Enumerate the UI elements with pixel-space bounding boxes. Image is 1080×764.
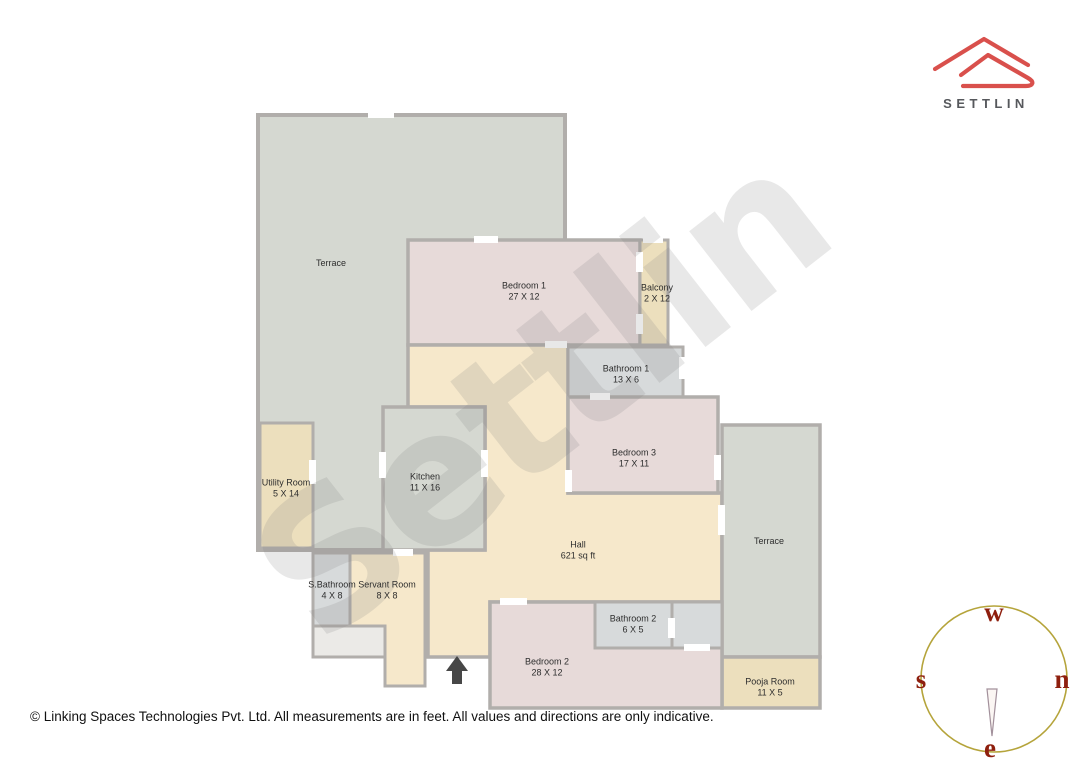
door-gap: [393, 549, 413, 556]
room-label-pooja: Pooja Room11 X 5: [745, 677, 795, 698]
room-label-bedroom-3: Bedroom 317 X 11: [612, 448, 656, 469]
room-label-s-bathroom: S.Bathroom4 X 8: [308, 580, 356, 601]
door-gap: [718, 505, 725, 535]
entrance-arrow-icon: [446, 656, 468, 684]
door-gap: [636, 314, 643, 334]
door-gap: [545, 341, 567, 348]
door-gap: [668, 618, 675, 638]
window-gap: [368, 111, 394, 118]
compass-circle: [921, 606, 1067, 752]
room-passage: [672, 602, 722, 648]
compass-north-label: n: [1054, 664, 1069, 694]
door-gap: [714, 455, 721, 480]
entrance-arrow-stem: [452, 671, 462, 684]
room-bedroom-3: [568, 397, 718, 493]
room-label-bathroom-1: Bathroom 113 X 6: [603, 364, 650, 385]
room-label-bedroom-2: Bedroom 228 X 12: [525, 657, 569, 678]
door-gap: [679, 357, 686, 379]
room-label-utility: Utility Room5 X 14: [262, 478, 311, 499]
compass-east-label: e: [984, 733, 996, 763]
window-gap: [474, 236, 498, 243]
door-gap: [500, 598, 527, 605]
settlin-logo-icon: [932, 32, 1038, 95]
room-label-hall: Hall621 sq ft: [561, 540, 596, 561]
room-servant: [350, 553, 425, 686]
room-label-bedroom-1: Bedroom 127 X 12: [502, 281, 546, 302]
door-gap: [684, 644, 710, 651]
room-label-terrace-upper: Terrace: [316, 258, 346, 269]
room-label-terrace-right: Terrace: [754, 536, 784, 547]
room-lobby: [313, 626, 385, 657]
door-gap: [565, 470, 572, 492]
compass-west-label: w: [984, 597, 1004, 627]
door-gap: [590, 393, 610, 400]
floor-plan-page: w s n e Settlin Terrace Bedroom 127 X 12…: [0, 0, 1080, 764]
window-gap: [643, 236, 663, 243]
floor-plan: w s n e: [0, 0, 1080, 764]
brand-wordmark: SETTLIN: [928, 96, 1040, 111]
footer-disclaimer: © Linking Spaces Technologies Pvt. Ltd. …: [30, 709, 714, 724]
room-label-balcony: Balcony2 X 12: [641, 283, 673, 304]
compass: w s n e: [916, 597, 1070, 763]
compass-south-label: s: [916, 664, 927, 694]
room-label-servant: Servant Room8 X 8: [358, 580, 416, 601]
roof-icon: [932, 32, 1038, 90]
room-label-kitchen: Kitchen11 X 16: [410, 472, 440, 493]
room-label-bathroom-2: Bathroom 26 X 5: [610, 614, 657, 635]
door-gap: [481, 450, 488, 477]
roof-outer-path: [935, 39, 1028, 69]
door-gap: [379, 452, 386, 478]
compass-needle: [987, 689, 997, 736]
door-gap: [636, 252, 643, 272]
